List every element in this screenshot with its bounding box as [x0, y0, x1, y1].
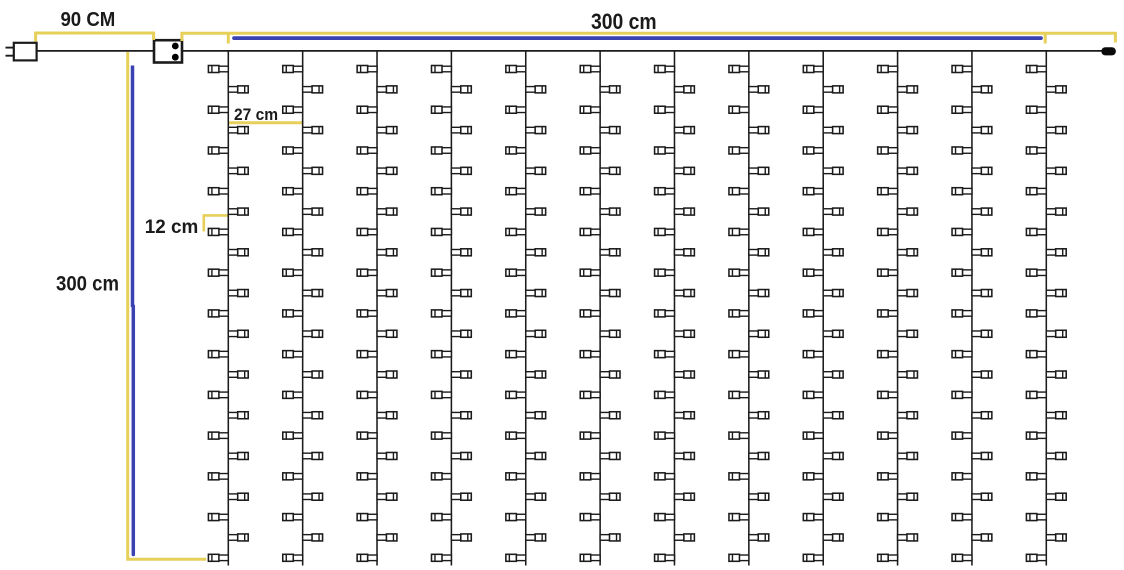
svg-text:90 CM: 90 CM [60, 9, 115, 31]
svg-text:12 cm: 12 cm [145, 216, 199, 238]
svg-text:300 cm: 300 cm [56, 272, 119, 296]
svg-text:27 cm: 27 cm [234, 105, 278, 124]
svg-text:300 cm: 300 cm [591, 9, 657, 34]
